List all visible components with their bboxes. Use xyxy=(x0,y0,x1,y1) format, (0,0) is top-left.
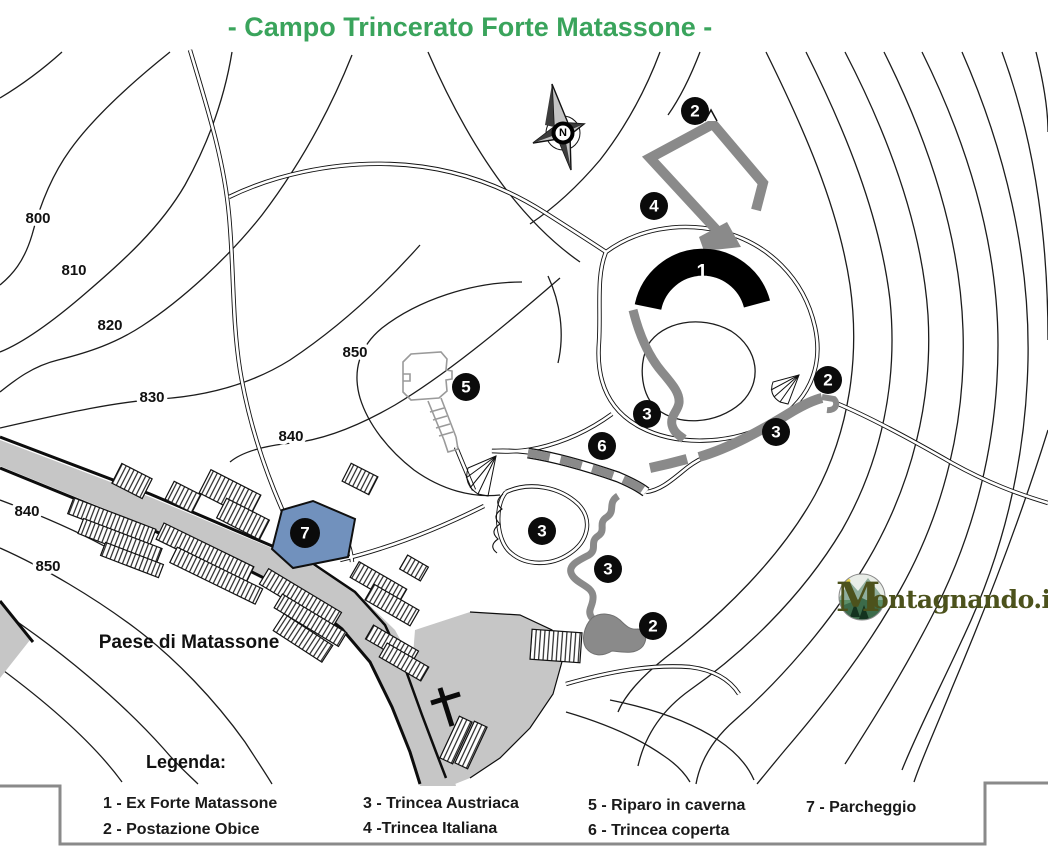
elevation-label: 800 xyxy=(25,210,50,227)
svg-text:5: 5 xyxy=(461,378,470,397)
legend-item-7: 7 - Parcheggio xyxy=(806,799,916,816)
elevation-label: 840 xyxy=(278,428,303,445)
legend-item-2: 2 - Postazione Obice xyxy=(103,821,260,838)
marker-7-parking[interactable]: 7 xyxy=(290,518,320,548)
svg-text:3: 3 xyxy=(642,405,651,424)
map-page: N 2 4 2 3 3 6 5 3 3 2 7 1 800 810 820 83… xyxy=(0,0,1048,850)
marker-2-top[interactable]: 2 xyxy=(681,97,709,125)
trenches xyxy=(571,124,837,618)
legend-item-6: 6 - Trincea coperta xyxy=(588,822,729,839)
svg-text:3: 3 xyxy=(771,423,780,442)
marker-4[interactable]: 4 xyxy=(640,192,668,220)
svg-text:3: 3 xyxy=(537,522,546,541)
marker-3-loop[interactable]: 3 xyxy=(528,517,556,545)
svg-text:3: 3 xyxy=(603,560,612,579)
elevation-label: 820 xyxy=(97,317,122,334)
elevation-label: 830 xyxy=(139,389,164,406)
village-label: Paese di Matassone xyxy=(99,632,280,653)
elevation-label: 840 xyxy=(14,503,39,520)
watermark: M ontagnando.it xyxy=(836,574,1048,621)
compass-rose: N xyxy=(533,84,584,170)
marker-3-south[interactable]: 3 xyxy=(594,555,622,583)
compass-north-label: N xyxy=(559,127,567,139)
legend-item-5: 5 - Riparo in caverna xyxy=(588,797,745,814)
cave-shelter-structure xyxy=(403,352,458,452)
legend-item-3: 3 - Trincea Austriaca xyxy=(363,795,519,812)
marker-3-east[interactable]: 3 xyxy=(762,418,790,446)
elevation-label: 850 xyxy=(35,558,60,575)
marker-2-south[interactable]: 2 xyxy=(639,612,667,640)
svg-text:2: 2 xyxy=(690,102,699,121)
stair-fan-east xyxy=(771,375,799,404)
trench-blob xyxy=(584,614,646,655)
svg-text:6: 6 xyxy=(597,437,606,456)
watermark-text: ontagnando.it xyxy=(872,585,1048,614)
legend-item-4: 4 -Trincea Italiana xyxy=(363,820,497,837)
legend-item-1: 1 - Ex Forte Matassone xyxy=(103,795,277,812)
legend-panel: Legenda: 1 - Ex Forte Matassone 2 - Post… xyxy=(0,752,1048,844)
svg-text:2: 2 xyxy=(823,371,832,390)
svg-text:2: 2 xyxy=(648,617,657,636)
elevation-label: 850 xyxy=(342,344,367,361)
marker-2-east[interactable]: 2 xyxy=(814,366,842,394)
map-canvas: N 2 4 2 3 3 6 5 3 3 2 7 1 800 810 820 83… xyxy=(0,0,1048,850)
svg-text:4: 4 xyxy=(649,197,659,216)
fort-number-label: 1 xyxy=(696,261,707,283)
marker-6[interactable]: 6 xyxy=(588,432,616,460)
svg-text:7: 7 xyxy=(300,524,309,543)
marker-3-center[interactable]: 3 xyxy=(633,400,661,428)
marker-5[interactable]: 5 xyxy=(452,373,480,401)
page-title: - Campo Trincerato Forte Matassone - xyxy=(228,12,713,42)
stair-fan-west xyxy=(466,456,496,496)
elevation-label: 810 xyxy=(61,262,86,279)
legend-heading: Legenda: xyxy=(146,752,226,772)
